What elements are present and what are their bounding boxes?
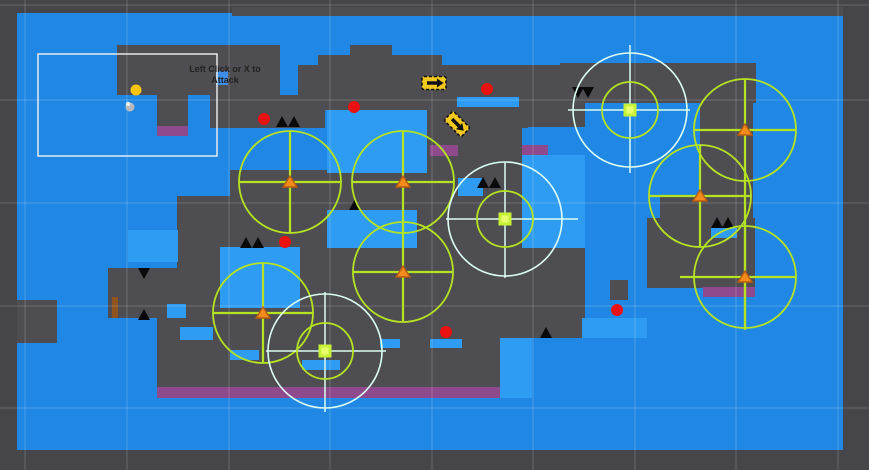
selected-enemy-core xyxy=(322,348,329,355)
selected-enemy-core xyxy=(502,216,509,223)
platform-strip[interactable] xyxy=(220,247,300,308)
hazard-strip[interactable] xyxy=(157,126,188,136)
coin[interactable] xyxy=(131,85,142,96)
platform-strip[interactable] xyxy=(430,339,462,348)
ground-platform[interactable] xyxy=(610,280,628,300)
platform-strip[interactable] xyxy=(128,230,178,262)
level-canvas xyxy=(0,0,869,470)
enemy-ball[interactable] xyxy=(348,101,360,113)
hazard-strip[interactable] xyxy=(522,145,548,155)
platform-strip[interactable] xyxy=(582,318,647,338)
scene-view: Left Click or X to Attack xyxy=(0,0,869,470)
ledge-bar[interactable] xyxy=(112,297,118,318)
platform-strip[interactable] xyxy=(380,339,400,348)
platform-strip[interactable] xyxy=(180,327,213,340)
ground-platform[interactable] xyxy=(117,45,280,95)
platform-strip[interactable] xyxy=(327,110,427,173)
hazard-strip[interactable] xyxy=(157,387,500,398)
enemy-ball[interactable] xyxy=(440,326,452,338)
enemy-ball[interactable] xyxy=(258,113,270,125)
enemy-ball[interactable] xyxy=(481,83,493,95)
platform-strip[interactable] xyxy=(302,360,340,370)
hazard-strip[interactable] xyxy=(703,287,755,297)
player-spawn-highlight xyxy=(126,102,130,106)
enemy-ball[interactable] xyxy=(279,236,291,248)
boost-arrow[interactable] xyxy=(422,77,446,90)
platform-strip[interactable] xyxy=(457,97,519,107)
hud-icon xyxy=(216,71,228,85)
platform-strip[interactable] xyxy=(500,338,532,398)
selected-enemy-core xyxy=(627,107,634,114)
enemy-ball[interactable] xyxy=(611,304,623,316)
ground-platform[interactable] xyxy=(232,7,843,16)
